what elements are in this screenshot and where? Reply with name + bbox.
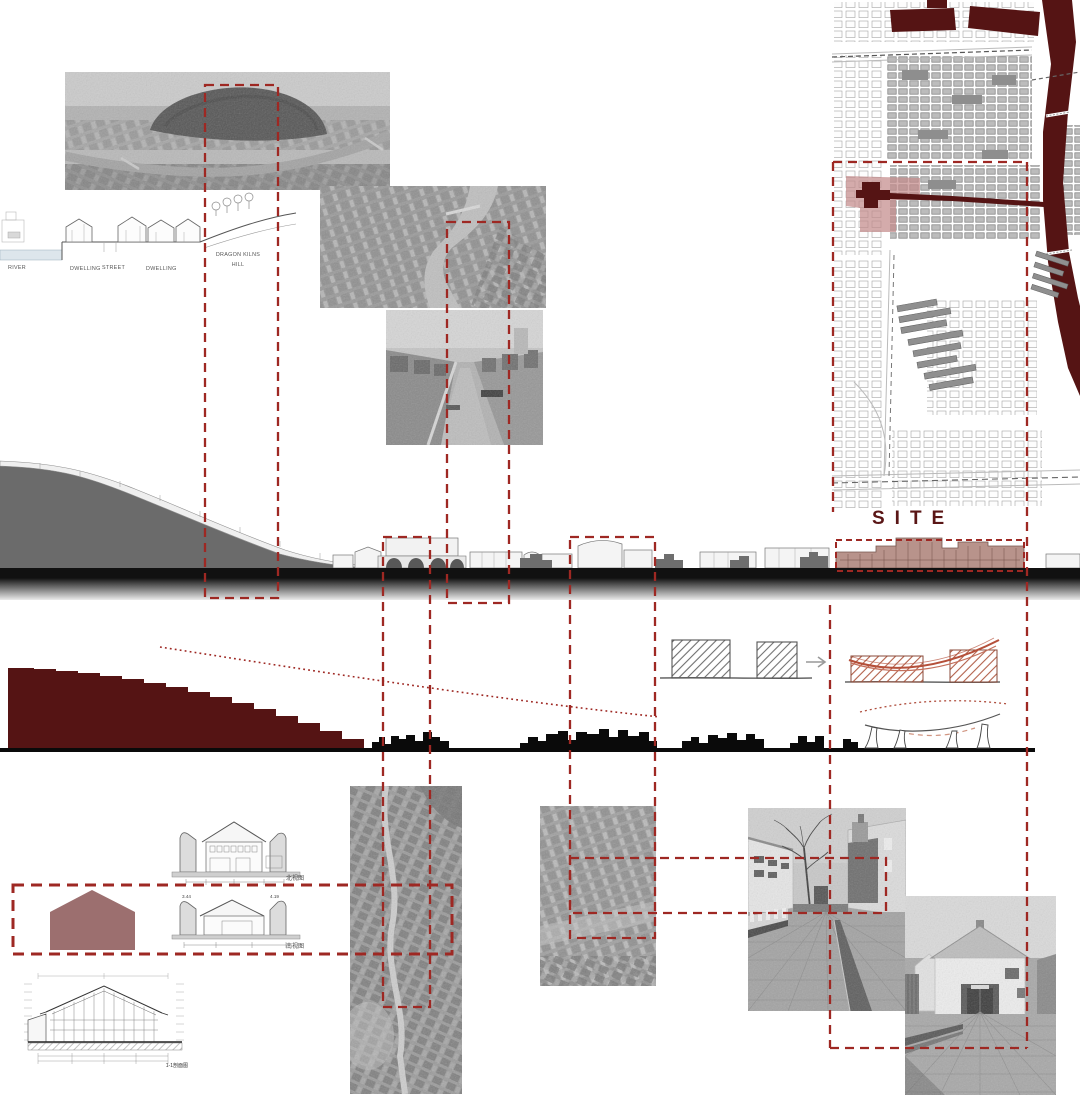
baseline	[0, 748, 1035, 752]
elevation-drawing-bottom: 3.44 4.19 南视图	[166, 890, 306, 952]
red-house-silhouette	[44, 884, 140, 954]
elevation-bottom-label: 南视图	[286, 942, 304, 950]
technical-section-drawing: 1-1剖面图	[18, 970, 190, 1070]
red-hill-profile	[8, 668, 364, 748]
label-hill-line2: HILL	[232, 262, 245, 268]
site-label: SITE	[872, 508, 954, 530]
elevation-top-label: 北视图	[286, 874, 304, 882]
town-skyline-section	[0, 460, 1080, 600]
panorama-photo-hill-town	[65, 72, 390, 190]
site-section-block	[836, 538, 1024, 568]
figure-ground-map	[832, 0, 1080, 510]
ground-bar	[0, 568, 1080, 578]
plaza-photo-white-house	[905, 896, 1056, 1095]
label-dwelling-right: DWELLING	[146, 266, 177, 272]
label-hill-line1: DRAGON KILNS	[216, 252, 260, 258]
aerial-photo-river-bend	[320, 186, 546, 308]
plaza-photo-tree	[748, 808, 906, 1011]
concept-sketch-structure	[860, 701, 1008, 748]
hill-trees	[212, 193, 253, 216]
aerial-strip-photo	[350, 786, 462, 1094]
label-river: RIVER	[8, 265, 26, 271]
kiln-buildings	[378, 538, 466, 568]
arrow-icon	[806, 657, 825, 667]
label-dwelling-left: DWELLING	[70, 266, 101, 272]
label-street: STREET	[102, 265, 125, 271]
dim-right: 4.19	[270, 894, 279, 899]
aerial-photo-rooftops	[540, 806, 656, 986]
concept-sketch-existing	[660, 640, 812, 678]
analysis-band	[0, 600, 1080, 770]
town-silhouette	[372, 729, 858, 748]
concept-sketch-canopy	[845, 638, 1000, 682]
tech-section-label: 1-1剖面图	[166, 1062, 188, 1069]
section-drawing-river-to-hill: RIVER DWELLING STREET DWELLING DRAGON KI…	[0, 192, 300, 292]
canal-photo-boats	[386, 310, 543, 445]
elevation-drawing-top: 北视图	[166, 808, 306, 888]
hill-profile-gray	[0, 466, 365, 568]
analysis-board: RIVER DWELLING STREET DWELLING DRAGON KI…	[0, 0, 1080, 1113]
dim-left: 3.44	[182, 894, 191, 899]
